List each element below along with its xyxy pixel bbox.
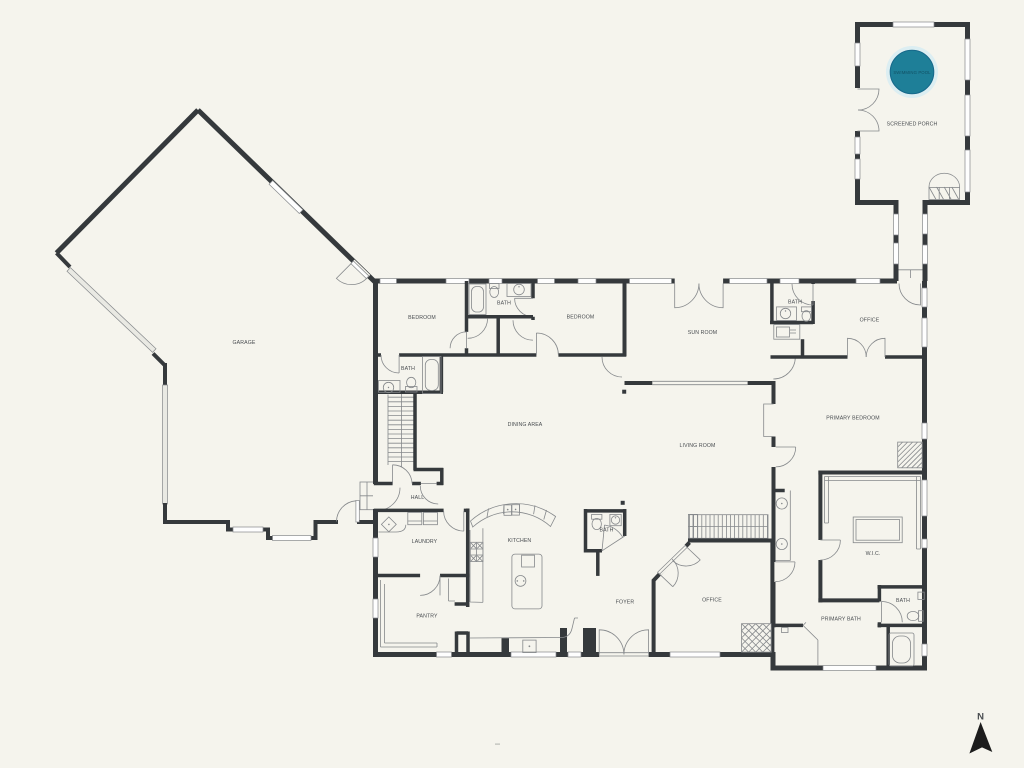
svg-text:BATH: BATH: [896, 598, 910, 604]
svg-text:FOYER: FOYER: [616, 600, 635, 606]
svg-text:DINING AREA: DINING AREA: [508, 422, 543, 428]
svg-text:GARAGE: GARAGE: [233, 340, 256, 346]
svg-text:BATH: BATH: [788, 300, 802, 306]
svg-text:SUN ROOM: SUN ROOM: [688, 330, 718, 336]
svg-text:LIVING ROOM: LIVING ROOM: [680, 443, 716, 449]
svg-text:LAUNDRY: LAUNDRY: [412, 539, 438, 545]
svg-text:PANTRY: PANTRY: [416, 614, 438, 620]
svg-text:BATH: BATH: [401, 366, 415, 372]
svg-text:BATH: BATH: [497, 301, 511, 307]
svg-text:N: N: [977, 712, 984, 723]
svg-text:OFFICE: OFFICE: [702, 598, 722, 604]
svg-text:BEDROOM: BEDROOM: [567, 314, 595, 320]
svg-text:SWIMMING POOL: SWIMMING POOL: [893, 70, 931, 75]
svg-text:HALL: HALL: [411, 495, 424, 501]
svg-text:PRIMARY BEDROOM: PRIMARY BEDROOM: [826, 416, 880, 422]
svg-text:OFFICE: OFFICE: [860, 318, 880, 324]
svg-text:W.I.C.: W.I.C.: [866, 551, 881, 557]
svg-text:BEDROOM: BEDROOM: [408, 315, 436, 321]
svg-text:PRIMARY BATH: PRIMARY BATH: [821, 617, 861, 623]
svg-text:SCREENED PORCH: SCREENED PORCH: [887, 122, 938, 128]
svg-text:KITCHEN: KITCHEN: [508, 538, 532, 544]
svg-text:BATH: BATH: [600, 528, 614, 534]
